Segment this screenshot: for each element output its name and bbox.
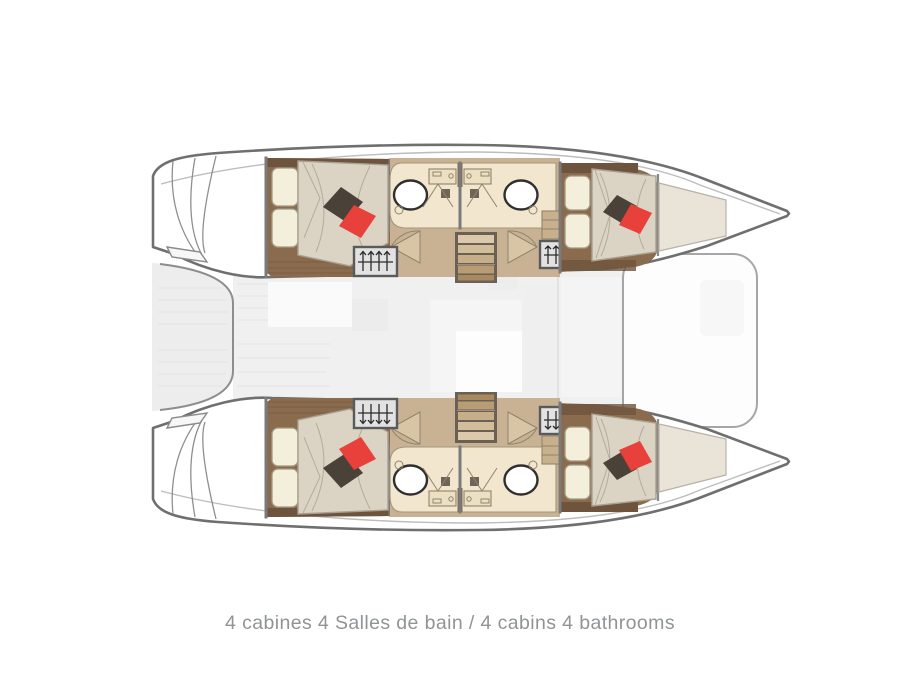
catamaran-floorplan-page: 4 cabines 4 Salles de bain / 4 cabins 4 …: [0, 0, 900, 675]
foredeck: [623, 254, 757, 427]
saloon-table: [352, 299, 388, 331]
side-unit: [523, 284, 559, 396]
floor-plan-canvas: [0, 0, 900, 675]
saloon-seat: [268, 282, 352, 327]
plan-caption: 4 cabines 4 Salles de bain / 4 cabins 4 …: [0, 612, 900, 635]
center-deck: [233, 271, 623, 404]
forward-seat: [561, 277, 621, 397]
aft-cockpit: [152, 263, 233, 411]
foredeck-outline: [623, 254, 757, 427]
foredeck-hatch: [700, 280, 744, 336]
galley-counter: [456, 331, 522, 392]
